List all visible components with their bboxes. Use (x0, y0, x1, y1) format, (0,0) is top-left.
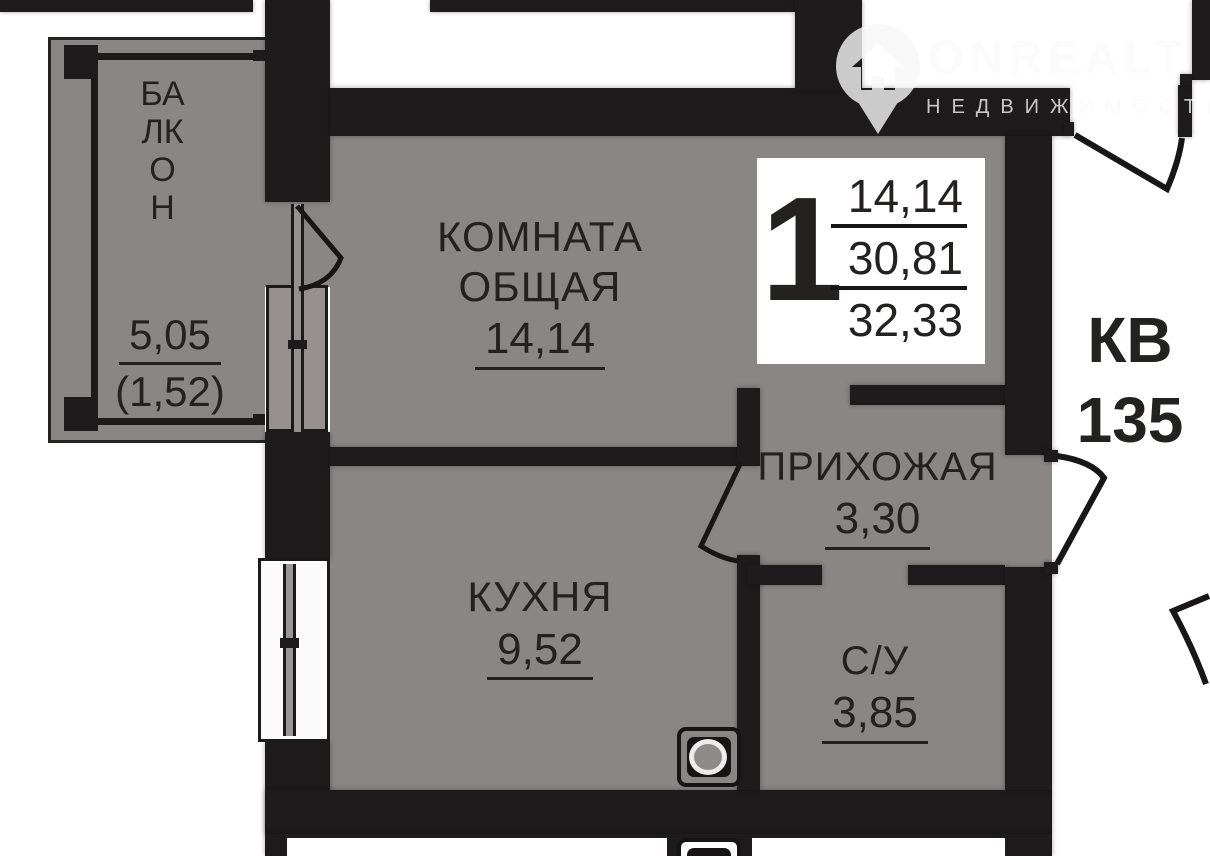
neighbor-room-below-left (287, 838, 667, 856)
wall-mid-pillar (795, 0, 862, 90)
wall-bathroom-top-right (908, 565, 1005, 585)
living-room-area: 14,14 (475, 313, 605, 370)
wall-neighbor-right (1178, 85, 1192, 137)
room-count: 1 (761, 150, 831, 350)
apartment-number-prefix: КВ (1050, 300, 1210, 380)
vent-shaft-circle (689, 739, 727, 775)
balcony-rail-top (88, 53, 265, 60)
bathroom-name: С/У (795, 638, 955, 685)
apartment-number: КВ 135 (1050, 300, 1210, 460)
living-room-window-tick (288, 340, 307, 349)
area-badge: 1 14,14 30,81 32,33 (757, 158, 985, 364)
bathroom-area: 3,85 (822, 687, 928, 744)
area-values: 14,14 30,81 32,33 (831, 166, 967, 352)
living-room-name-line2: ОБЩАЯ (370, 262, 710, 312)
area-living-value: 14,14 (831, 166, 967, 228)
kitchen-window-mullion (283, 564, 296, 736)
wall-top (330, 88, 1070, 136)
balcony-name: БАЛКОН (140, 75, 184, 227)
wall-neighbor-corner (1192, 0, 1210, 80)
entrance-hinge-bottom (1044, 562, 1058, 574)
wall-bathroom-top-left (748, 565, 822, 585)
kitchen-label: КУХНЯ 9,52 (410, 572, 670, 680)
living-room-window-mullion (291, 204, 304, 432)
neighbor-room-below-right (752, 838, 1005, 856)
wall-top-strip-mid (430, 0, 795, 12)
hallway-area: 3,30 (825, 493, 931, 550)
wall-top-strip-left (0, 0, 253, 12)
balcony-area-secondary: (1,52) (95, 367, 245, 417)
balcony-area-label: 5,05 (1,52) (95, 308, 245, 416)
kitchen-name: КУХНЯ (410, 572, 670, 622)
neighbor-door-hinge (1064, 122, 1074, 136)
wall-left-pillar (265, 0, 330, 202)
balcony-post-topleft (64, 45, 98, 79)
vent-shaft-mirror-inner (687, 848, 731, 856)
balcony-label: БАЛКОН (140, 75, 185, 227)
kitchen-window-tick (280, 638, 299, 648)
wall-bottom (265, 790, 1052, 834)
neighbor-door-top-swing (1075, 135, 1182, 189)
wall-hallway-top (850, 385, 1005, 405)
balcony-post-bottomleft (64, 397, 98, 431)
balcony-area: 5,05 (119, 310, 221, 365)
entrance-door-swing (1057, 456, 1104, 564)
watermark-brand: ONREALT (928, 30, 1189, 84)
living-room-name-line1: КОМНАТА (370, 212, 710, 262)
balcony-post-bottomright (253, 414, 265, 425)
living-room-label: КОМНАТА ОБЩАЯ 14,14 (370, 212, 710, 370)
hallway-label: ПРИХОЖАЯ 3,30 (740, 444, 1015, 550)
neighbor-door-bottom-swing (1173, 596, 1209, 684)
balcony-post-topright (253, 50, 265, 61)
floor-plan: 1 14,14 30,81 32,33 КВ 135 БАЛКОН 5,05 (… (0, 0, 1210, 856)
neighbor-wall-hinge (1180, 74, 1192, 85)
balcony-rail-bottom (91, 418, 265, 425)
hallway-name: ПРИХОЖАЯ (740, 444, 1015, 491)
wall-room-kitchen (330, 447, 737, 466)
area-main-value: 30,81 (831, 228, 967, 290)
area-total-value: 32,33 (831, 290, 967, 352)
apartment-number-value: 135 (1050, 380, 1210, 460)
kitchen-area: 9,52 (487, 624, 593, 681)
wall-left-mid (265, 432, 330, 558)
wall-right-bottom (1005, 567, 1052, 790)
wall-right-top (1005, 136, 1052, 455)
bathroom-label: С/У 3,85 (795, 638, 955, 744)
